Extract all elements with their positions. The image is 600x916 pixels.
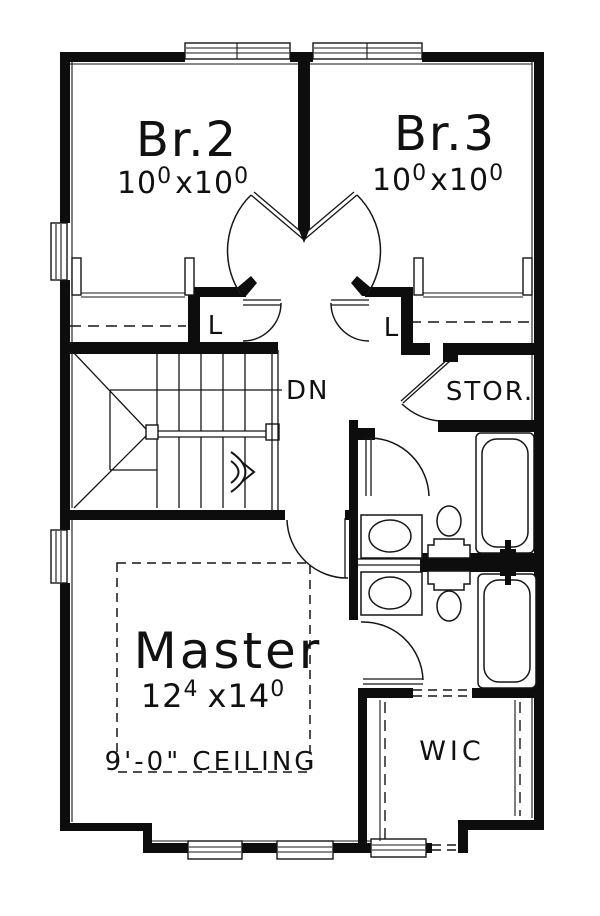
toilet-hall-bath: [428, 506, 470, 558]
door-swing-linen-right: [331, 300, 369, 341]
room-label-br3: Br.3: [394, 106, 496, 162]
room-labels: Br.2 100x100 Br.3 100x100 Master 124x140…: [105, 106, 535, 777]
room-label-linen-right: L: [384, 313, 401, 343]
stairs-dn-label: DN: [286, 376, 329, 406]
toilet-master-bath: [428, 571, 470, 621]
vanity-sink-hall-bath: [361, 515, 422, 558]
floor-plan-sheet: Br.2 100x100 Br.3 100x100 Master 124x140…: [0, 0, 600, 916]
floor-plan-drawing: Br.2 100x100 Br.3 100x100 Master 124x140…: [0, 0, 600, 916]
stair-direction-arrow-icon: [231, 452, 254, 492]
vanity-sink-master-bath: [361, 572, 422, 615]
closet-wic-rods: [380, 700, 520, 841]
bathtub-master-bath: [478, 571, 536, 688]
door-swing-hall-bath: [366, 437, 429, 496]
ceiling-note: 9'-0" CEILING: [105, 747, 318, 777]
door-swing-linen-left: [243, 300, 281, 341]
room-label-linen-left: L: [208, 311, 225, 341]
room-label-wic: WIC: [419, 736, 485, 767]
window-icon-master-bottom-2: [277, 841, 333, 859]
room-dim-br2: 100x100: [117, 164, 249, 201]
stair-handrail: [146, 424, 279, 440]
bathtub-hall-bath: [476, 433, 534, 554]
room-label-master: Master: [134, 622, 323, 680]
window-icon-bottom-3: [371, 839, 426, 857]
door-swing-br2: [228, 192, 306, 296]
window-icon-br3-top: [313, 43, 422, 59]
window-icon-master-left: [51, 530, 67, 583]
window-icon-master-bottom-1: [188, 841, 242, 859]
closet-br2: [70, 258, 194, 326]
window-icon-br2-top: [185, 43, 290, 59]
closet-br3: [410, 258, 532, 322]
room-dim-master: 124x140: [141, 677, 285, 715]
window-icon-br2-left: [51, 223, 67, 280]
room-label-storage: STOR.: [446, 377, 534, 407]
door-swing-br3: [302, 192, 380, 296]
staircase: [74, 350, 282, 510]
door-swing-master-bath: [361, 622, 423, 684]
room-label-br2: Br.2: [136, 112, 238, 168]
door-swing-storage: [401, 359, 450, 421]
door-swing-master: [287, 518, 350, 578]
room-dim-br3: 100x100: [372, 161, 504, 198]
